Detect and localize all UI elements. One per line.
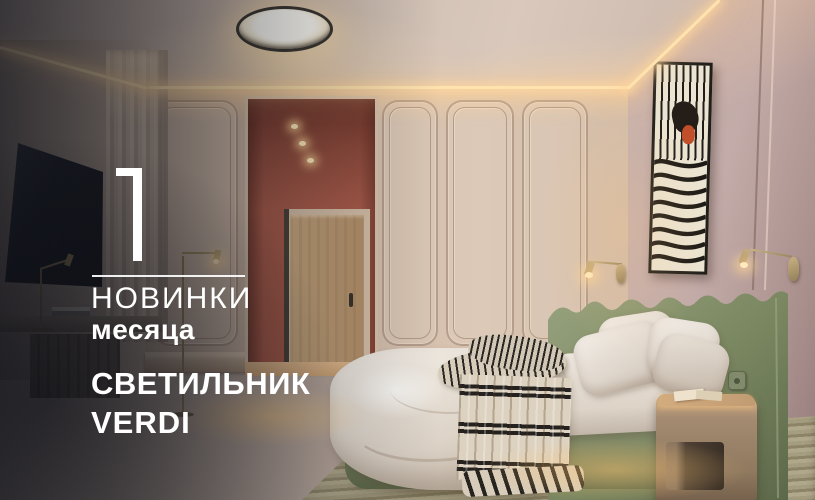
desk-lamp: [40, 268, 42, 330]
product-name-line1: СВЕТИЛЬНИК: [91, 368, 310, 399]
product-name-line2: VERDI: [91, 407, 191, 438]
cove-light-back: [148, 86, 630, 89]
right-wall-lamp-base: [788, 257, 799, 281]
wall-panel: [446, 100, 514, 346]
promo-banner: НОВИНКИ месяца СВЕТИЛЬНИК VERDI: [0, 0, 815, 500]
headboard-socket: [728, 371, 746, 390]
alcove-spotlight: [299, 141, 306, 146]
door-jamb: [284, 209, 289, 371]
right-lamp-glow: [740, 262, 748, 268]
books-stack: [52, 307, 90, 316]
alcove-spotlight: [291, 124, 298, 129]
hallway-alcove: [245, 96, 378, 375]
digit-1: [116, 168, 142, 261]
banner-heading: НОВИНКИ: [91, 284, 252, 314]
divider-line: [92, 275, 245, 277]
alcove-left-shadow: [248, 99, 264, 375]
verdi-ceiling-lamp: [236, 6, 333, 52]
door-handle: [349, 293, 353, 307]
wall-warm-glow: [540, 100, 710, 360]
floor-lamp-glow: [213, 259, 219, 264]
entrance-door: [290, 215, 364, 365]
alcove-spotlight: [307, 158, 314, 163]
banner-subheading: месяца: [91, 316, 195, 344]
wall-panel: [382, 100, 438, 346]
desk-lamp-base: [32, 328, 54, 332]
rug-light-pool: [480, 438, 750, 500]
